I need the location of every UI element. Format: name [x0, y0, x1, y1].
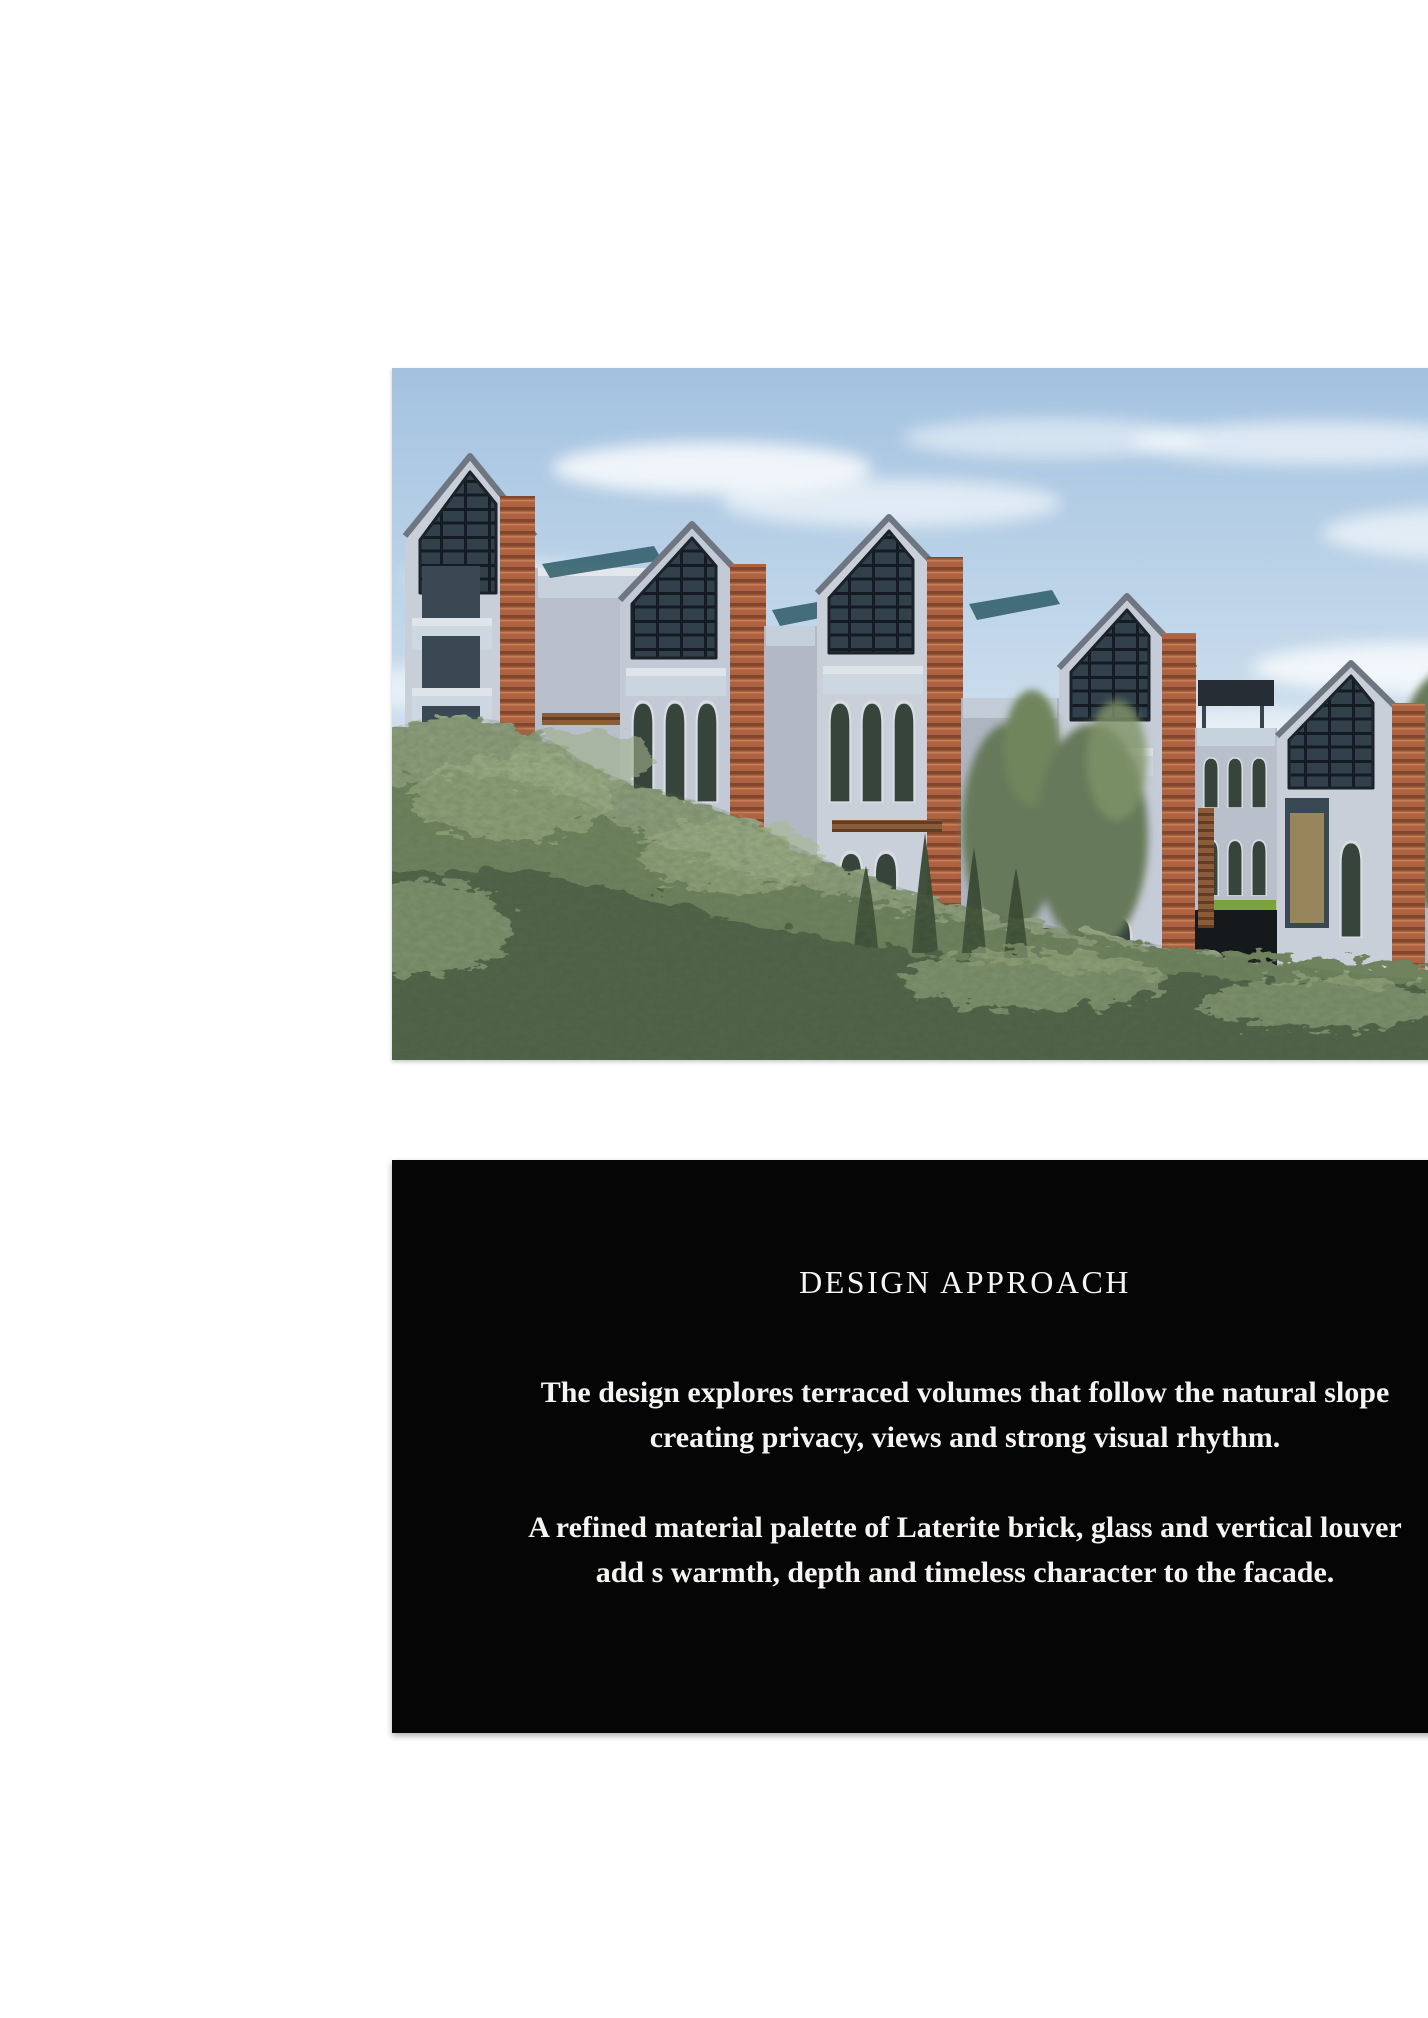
text-line: add s warmth, depth and timeless charact… [392, 1550, 1428, 1595]
hero-image [392, 368, 1428, 1060]
design-paragraph-2: A refined material palette of Laterite b… [392, 1505, 1428, 1595]
panel-title: DESIGN APPROACH [392, 1262, 1428, 1302]
text-line: creating privacy, views and strong visua… [392, 1415, 1428, 1460]
text-line: The design explores terraced volumes tha… [392, 1370, 1428, 1415]
design-approach-panel: DESIGN APPROACH The design explores terr… [392, 1160, 1428, 1733]
hero-image-svg [392, 368, 1428, 1060]
portfolio-page: DESIGN APPROACH The design explores terr… [0, 0, 1428, 2018]
text-line: A refined material palette of Laterite b… [392, 1505, 1428, 1550]
design-paragraph-1: The design explores terraced volumes tha… [392, 1370, 1428, 1460]
